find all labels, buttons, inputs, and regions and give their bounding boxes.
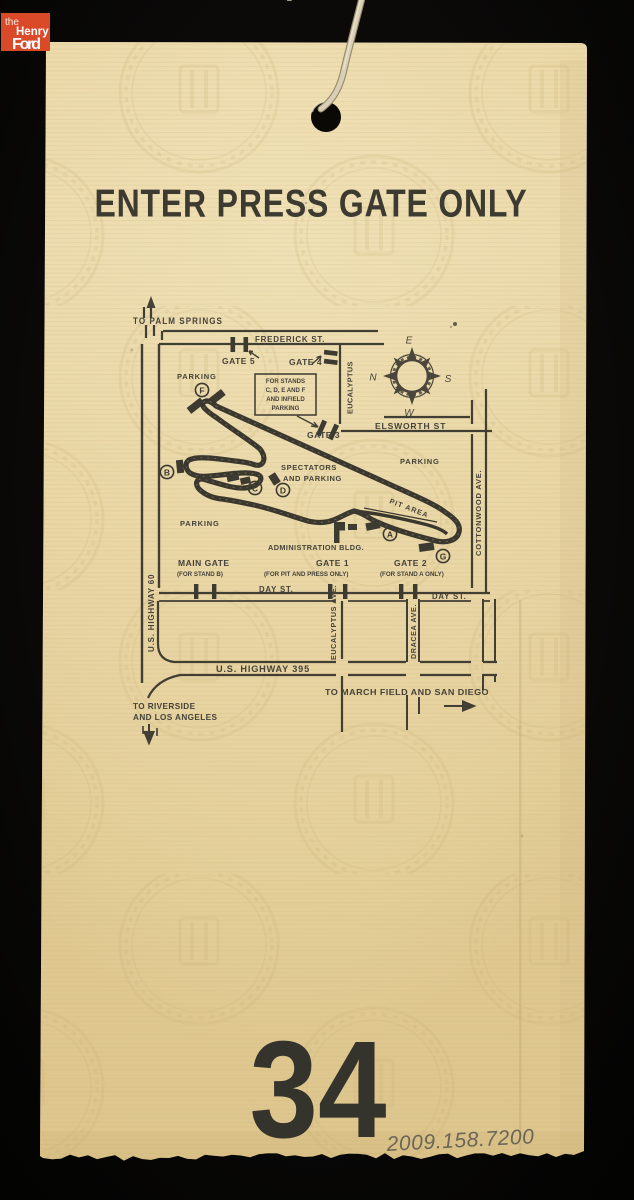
svg-text:FREDERICK ST.: FREDERICK ST.: [255, 335, 325, 344]
svg-text:ENTER PRESS GATE ONLY: ENTER PRESS GATE ONLY: [95, 183, 528, 226]
svg-text:(FOR PIT AND PRESS ONLY): (FOR PIT AND PRESS ONLY): [264, 571, 348, 578]
svg-text:AND PARKING: AND PARKING: [283, 474, 342, 483]
svg-text:GATE 1: GATE 1: [316, 558, 349, 568]
svg-text:GATE 4: GATE 4: [289, 357, 322, 367]
svg-text:F: F: [199, 386, 204, 396]
svg-text:C: C: [252, 484, 258, 494]
svg-text:N: N: [369, 373, 377, 384]
svg-text:TO PALM SPRINGS: TO PALM SPRINGS: [133, 316, 223, 326]
svg-text:C, D, E AND F: C, D, E AND F: [266, 387, 306, 394]
svg-text:B: B: [164, 468, 170, 478]
svg-text:PARKING: PARKING: [180, 519, 220, 528]
svg-text:GATE 2: GATE 2: [394, 558, 427, 568]
svg-text:ADMINISTRATION BLDG.: ADMINISTRATION BLDG.: [268, 543, 364, 552]
svg-text:GATE 3: GATE 3: [307, 430, 340, 440]
svg-text:EUCALYPTUS: EUCALYPTUS: [346, 361, 355, 414]
svg-text:S: S: [445, 374, 452, 385]
svg-text:AND INFIELD: AND INFIELD: [266, 396, 305, 403]
svg-text:(FOR STAND B): (FOR STAND B): [177, 571, 223, 578]
svg-text:DRACEA AVE.: DRACEA AVE.: [409, 604, 418, 659]
svg-text:PARKING: PARKING: [400, 457, 440, 466]
svg-text:AND LOS ANGELES: AND LOS ANGELES: [133, 713, 218, 722]
svg-text:MAIN GATE: MAIN GATE: [178, 558, 230, 568]
svg-text:DAY ST.: DAY ST.: [259, 585, 294, 594]
svg-text:34: 34: [250, 1013, 387, 1167]
svg-text:COTTONWOOD AVE.: COTTONWOOD AVE.: [474, 470, 483, 556]
svg-text:ELSWORTH ST: ELSWORTH ST: [375, 421, 446, 431]
svg-text:PARKING: PARKING: [177, 372, 217, 381]
svg-text:E: E: [406, 336, 413, 347]
svg-text:DAY ST.: DAY ST.: [432, 592, 467, 601]
svg-text:U.S. HIGHWAY 395: U.S. HIGHWAY 395: [216, 664, 310, 674]
svg-text:TO MARCH FIELD AND SAN DIEGO: TO MARCH FIELD AND SAN DIEGO: [325, 688, 489, 697]
svg-text:(FOR STAND A ONLY): (FOR STAND A ONLY): [380, 571, 444, 578]
svg-text:D: D: [280, 486, 286, 496]
svg-text:SPECTATORS: SPECTATORS: [281, 463, 337, 472]
svg-text:A: A: [387, 530, 393, 540]
svg-text:TO RIVERSIDE: TO RIVERSIDE: [133, 702, 196, 711]
svg-text:PARKING: PARKING: [272, 405, 300, 412]
svg-text:Ford: Ford: [12, 36, 41, 53]
svg-text:G: G: [440, 552, 447, 562]
svg-text:GATE 5: GATE 5: [222, 356, 255, 366]
svg-text:FOR STANDS: FOR STANDS: [266, 378, 305, 385]
svg-text:U.S. HIGHWAY 60: U.S. HIGHWAY 60: [147, 574, 156, 652]
svg-text:EUCALYPTUS AVE.: EUCALYPTUS AVE.: [329, 585, 338, 660]
